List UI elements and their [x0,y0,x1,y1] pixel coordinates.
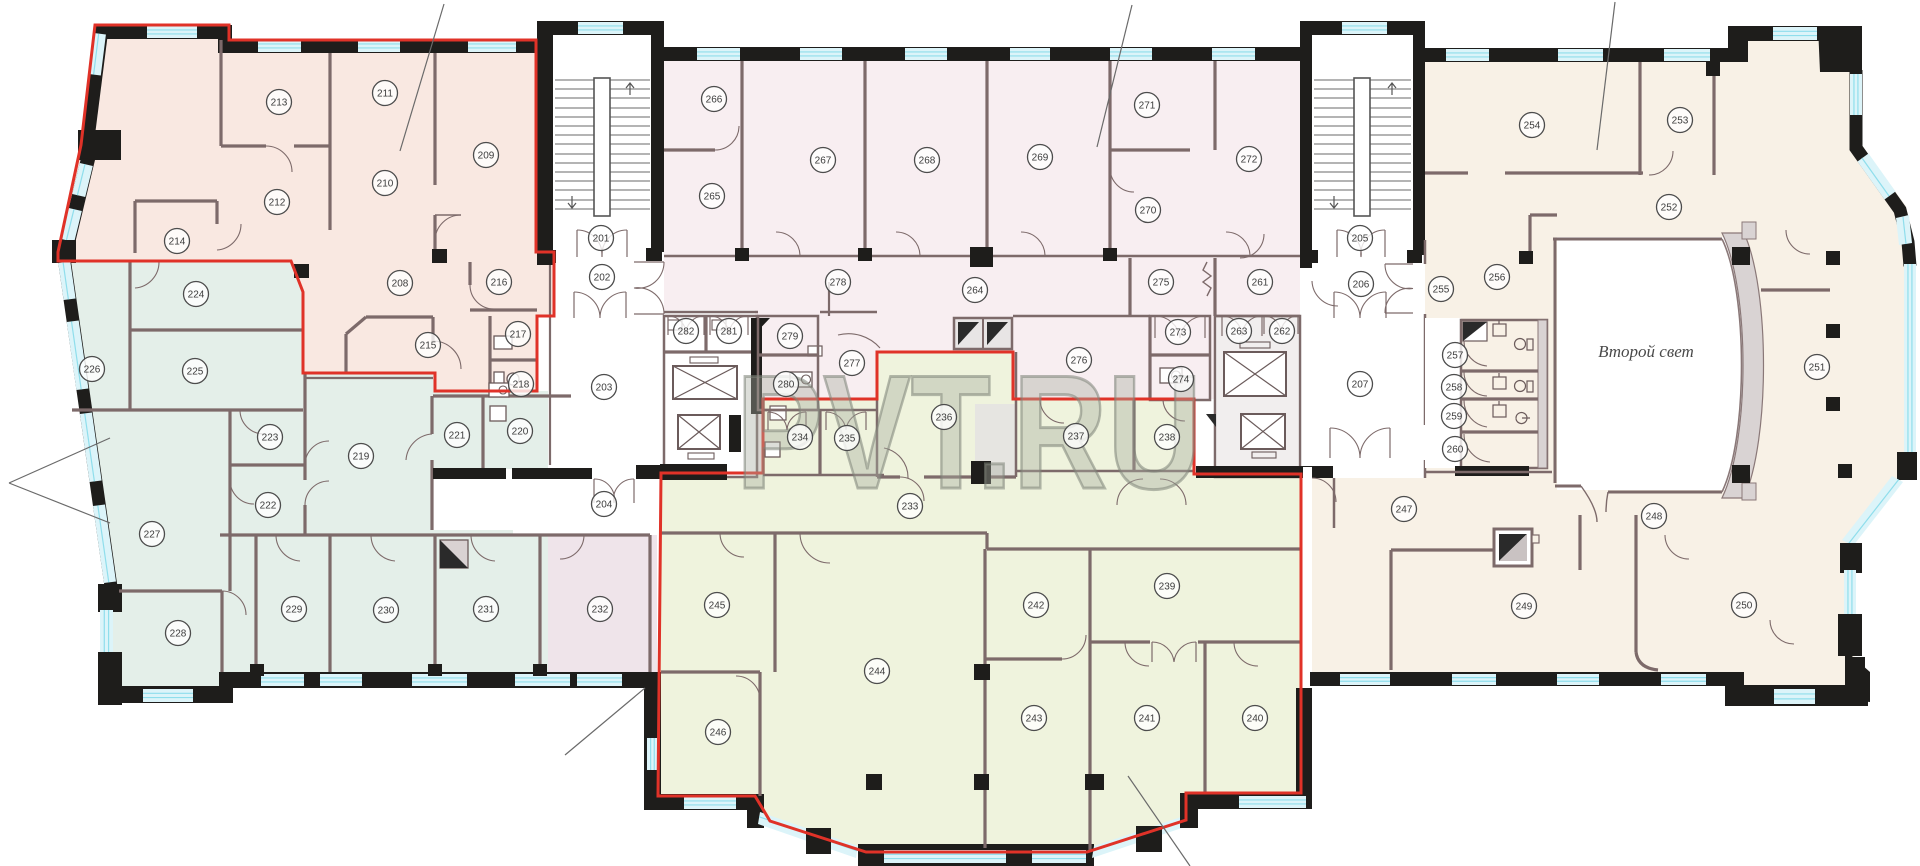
svg-text:224: 224 [188,290,205,301]
svg-text:243: 243 [1026,714,1043,725]
svg-text:214: 214 [169,237,186,248]
svg-text:254: 254 [1524,121,1541,132]
svg-text:235: 235 [839,434,856,445]
svg-text:265: 265 [704,192,721,203]
svg-text:262: 262 [1274,327,1291,338]
svg-text:234: 234 [792,433,809,444]
svg-text:258: 258 [1446,383,1463,394]
svg-text:255: 255 [1433,285,1450,296]
svg-text:246: 246 [710,728,727,739]
svg-text:242: 242 [1028,601,1045,612]
svg-text:210: 210 [377,179,394,190]
svg-text:213: 213 [271,98,288,109]
svg-text:259: 259 [1446,412,1463,423]
svg-text:268: 268 [919,156,936,167]
svg-text:269: 269 [1032,153,1049,164]
svg-text:227: 227 [144,530,161,541]
svg-text:245: 245 [709,601,726,612]
svg-text:223: 223 [262,433,279,444]
svg-text:279: 279 [782,332,799,343]
svg-text:249: 249 [1516,602,1533,613]
svg-text:240: 240 [1247,714,1264,725]
svg-text:216: 216 [491,278,508,289]
svg-text:264: 264 [967,286,984,297]
svg-text:271: 271 [1139,101,1156,112]
svg-text:231: 231 [478,605,495,616]
svg-text:247: 247 [1396,505,1413,516]
svg-text:278: 278 [830,278,847,289]
svg-text:239: 239 [1159,582,1176,593]
svg-text:257: 257 [1447,351,1464,362]
svg-text:215: 215 [420,341,437,352]
svg-text:276: 276 [1071,356,1088,367]
svg-text:237: 237 [1068,432,1085,443]
svg-text:270: 270 [1140,206,1157,217]
svg-text:220: 220 [512,427,529,438]
svg-text:272: 272 [1241,155,1258,166]
svg-text:281: 281 [721,327,738,338]
svg-text:225: 225 [187,367,204,378]
svg-text:230: 230 [378,606,395,617]
svg-text:266: 266 [706,95,723,106]
svg-text:282: 282 [678,327,695,338]
svg-text:201: 201 [593,234,610,245]
svg-text:253: 253 [1672,116,1689,127]
svg-text:263: 263 [1231,327,1248,338]
svg-text:209: 209 [478,151,495,162]
svg-text:217: 217 [510,330,527,341]
svg-text:236: 236 [936,413,953,424]
svg-text:203: 203 [596,383,613,394]
svg-text:260: 260 [1447,445,1464,456]
svg-text:233: 233 [902,502,919,513]
svg-text:206: 206 [1353,280,1370,291]
svg-text:212: 212 [269,198,286,209]
svg-text:228: 228 [170,629,187,640]
svg-text:205: 205 [1352,234,1369,245]
svg-text:277: 277 [844,359,861,370]
svg-text:221: 221 [449,431,466,442]
svg-text:202: 202 [594,273,611,284]
svg-text:250: 250 [1736,601,1753,612]
svg-text:267: 267 [815,156,832,167]
svg-text:244: 244 [869,667,886,678]
svg-text:238: 238 [1159,433,1176,444]
svg-text:207: 207 [1352,380,1369,391]
svg-text:275: 275 [1153,278,1170,289]
svg-text:Второй свет: Второй свет [1598,342,1694,361]
svg-text:222: 222 [260,501,277,512]
svg-text:219: 219 [353,452,370,463]
svg-text:256: 256 [1489,273,1506,284]
svg-text:280: 280 [778,380,795,391]
svg-text:208: 208 [392,279,409,290]
svg-text:252: 252 [1661,203,1678,214]
svg-text:211: 211 [377,89,393,100]
svg-text:261: 261 [1252,278,1269,289]
svg-text:226: 226 [84,365,101,376]
svg-text:229: 229 [286,605,303,616]
svg-text:204: 204 [596,500,613,511]
svg-text:251: 251 [1809,363,1826,374]
svg-text:241: 241 [1139,714,1156,725]
svg-text:248: 248 [1646,512,1663,523]
svg-text:273: 273 [1170,328,1187,339]
svg-text:232: 232 [592,605,609,616]
svg-text:274: 274 [1173,375,1190,386]
svg-text:218: 218 [513,380,530,391]
